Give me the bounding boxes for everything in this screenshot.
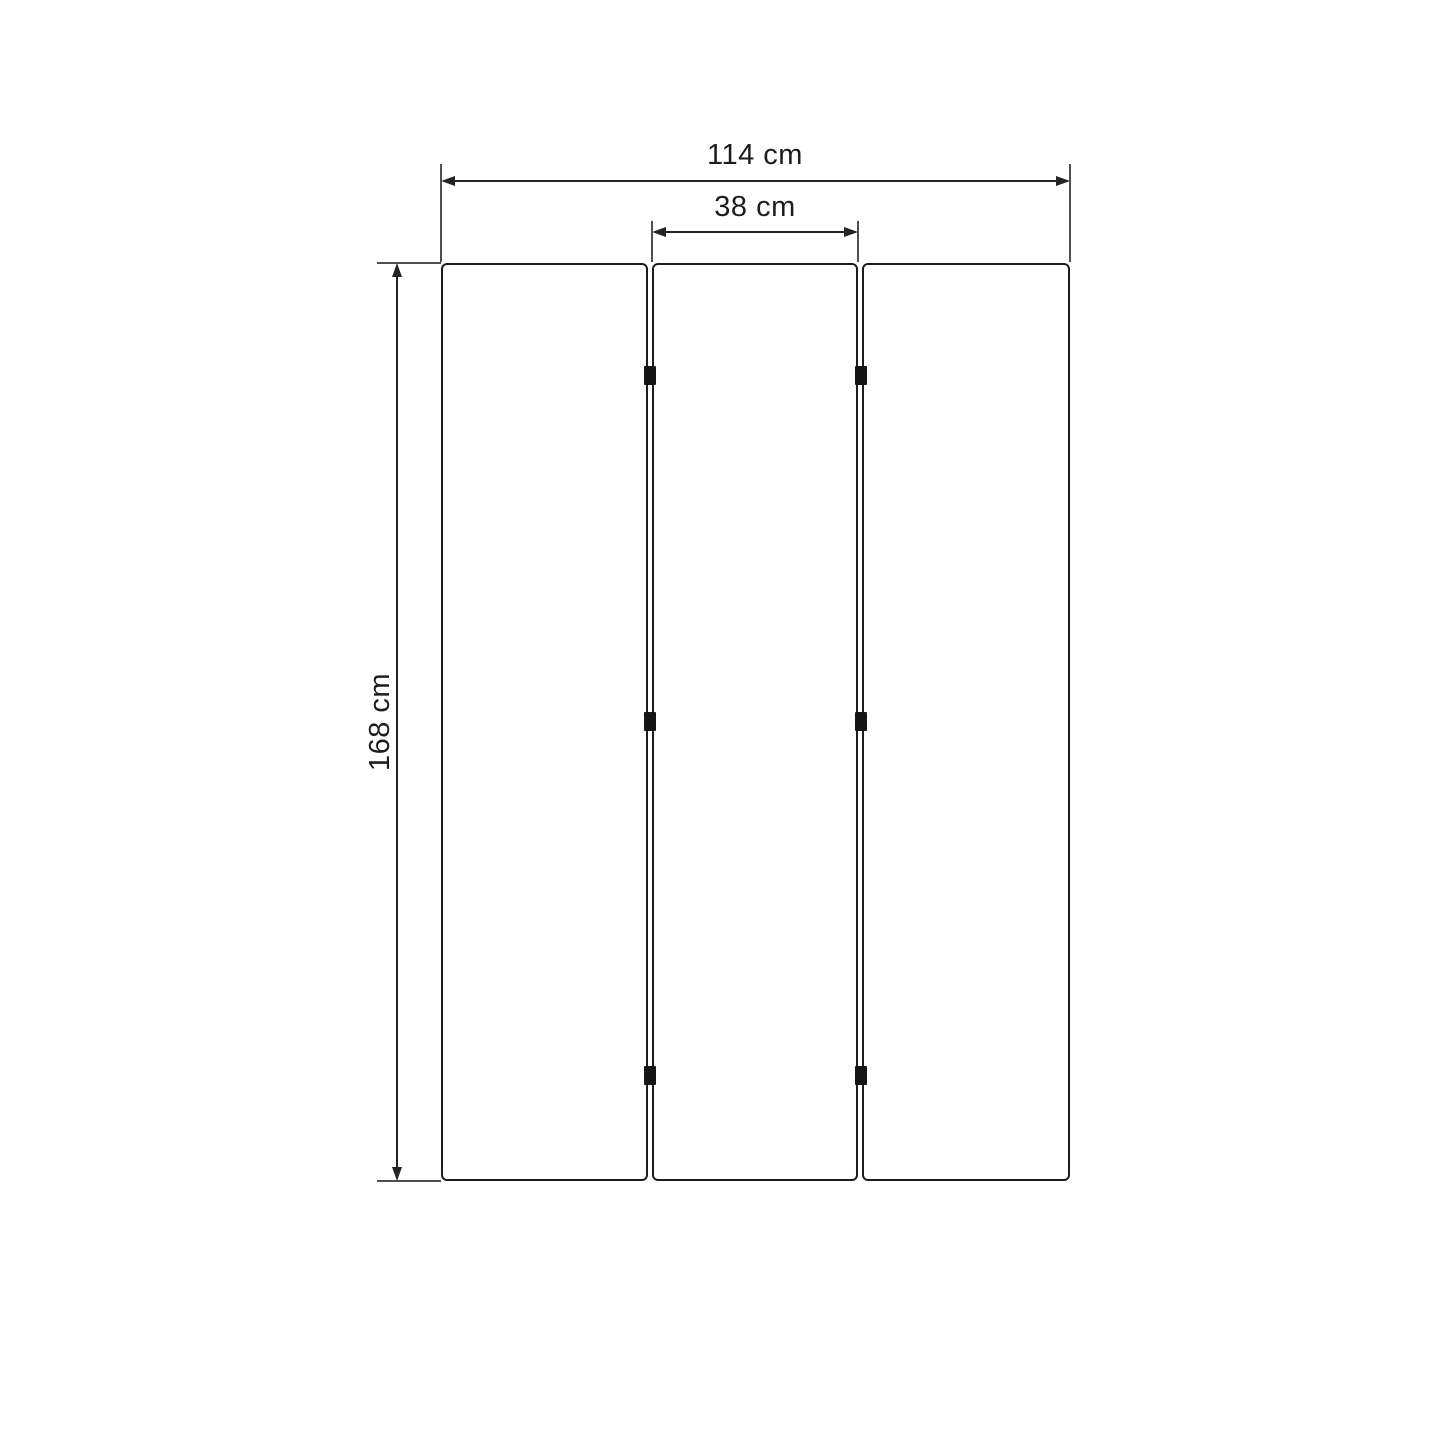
arrowhead-left-icon xyxy=(441,176,455,186)
panel-left xyxy=(441,263,648,1181)
extension-line xyxy=(857,221,859,262)
panel-right xyxy=(862,263,1070,1181)
panel-middle xyxy=(652,263,858,1181)
height-label: 168 cm xyxy=(365,642,395,802)
extension-line xyxy=(1069,164,1071,262)
dimension-drawing-canvas: 114 cm 38 cm 168 cm xyxy=(0,0,1445,1445)
arrowhead-down-icon xyxy=(392,1167,402,1181)
hinge-icon xyxy=(855,366,867,385)
arrowhead-right-icon xyxy=(844,227,858,237)
panel-width-label: 38 cm xyxy=(655,191,855,224)
extension-line xyxy=(440,164,442,262)
hinge-icon xyxy=(855,1066,867,1085)
hinge-icon xyxy=(855,712,867,731)
extension-line xyxy=(377,262,441,264)
arrowhead-left-icon xyxy=(652,227,666,237)
extension-line xyxy=(651,221,653,262)
extension-line xyxy=(377,1180,441,1182)
hinge-icon xyxy=(644,712,656,731)
arrowhead-right-icon xyxy=(1056,176,1070,186)
hinge-icon xyxy=(644,366,656,385)
height-dimension-line xyxy=(396,266,398,1176)
panel-width-dimension-line xyxy=(655,231,855,233)
arrowhead-up-icon xyxy=(392,263,402,277)
hinge-icon xyxy=(644,1066,656,1085)
total-width-label: 114 cm xyxy=(655,139,855,172)
total-width-dimension-line xyxy=(444,180,1068,182)
